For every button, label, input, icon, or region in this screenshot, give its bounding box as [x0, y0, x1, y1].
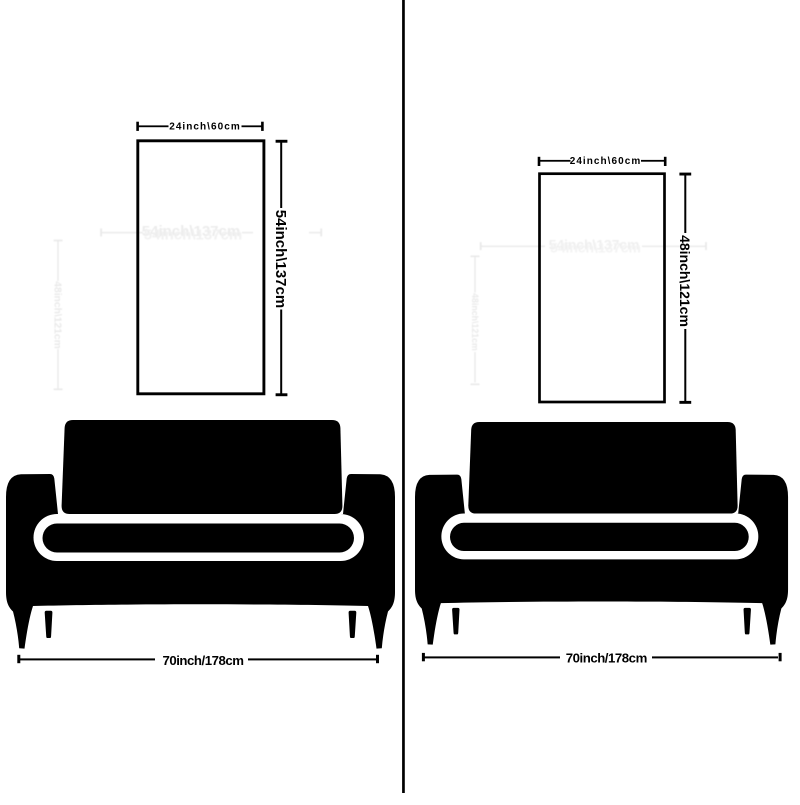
svg-text:54inch\137cm: 54inch\137cm	[550, 240, 641, 256]
svg-text:70inch/178cm: 70inch/178cm	[162, 653, 243, 668]
svg-text:54inch\137cm: 54inch\137cm	[272, 210, 289, 308]
svg-text:54inch\137cm: 54inch\137cm	[144, 227, 242, 244]
svg-text:70inch/178cm: 70inch/178cm	[566, 651, 647, 666]
svg-text:24inch\60cm: 24inch\60cm	[570, 156, 642, 167]
svg-text:24inch\60cm: 24inch\60cm	[169, 122, 241, 133]
svg-text:48inch\121cm: 48inch\121cm	[470, 293, 480, 351]
svg-text:48inch\121cm: 48inch\121cm	[51, 281, 62, 349]
svg-text:48inch\121cm: 48inch\121cm	[677, 235, 693, 327]
